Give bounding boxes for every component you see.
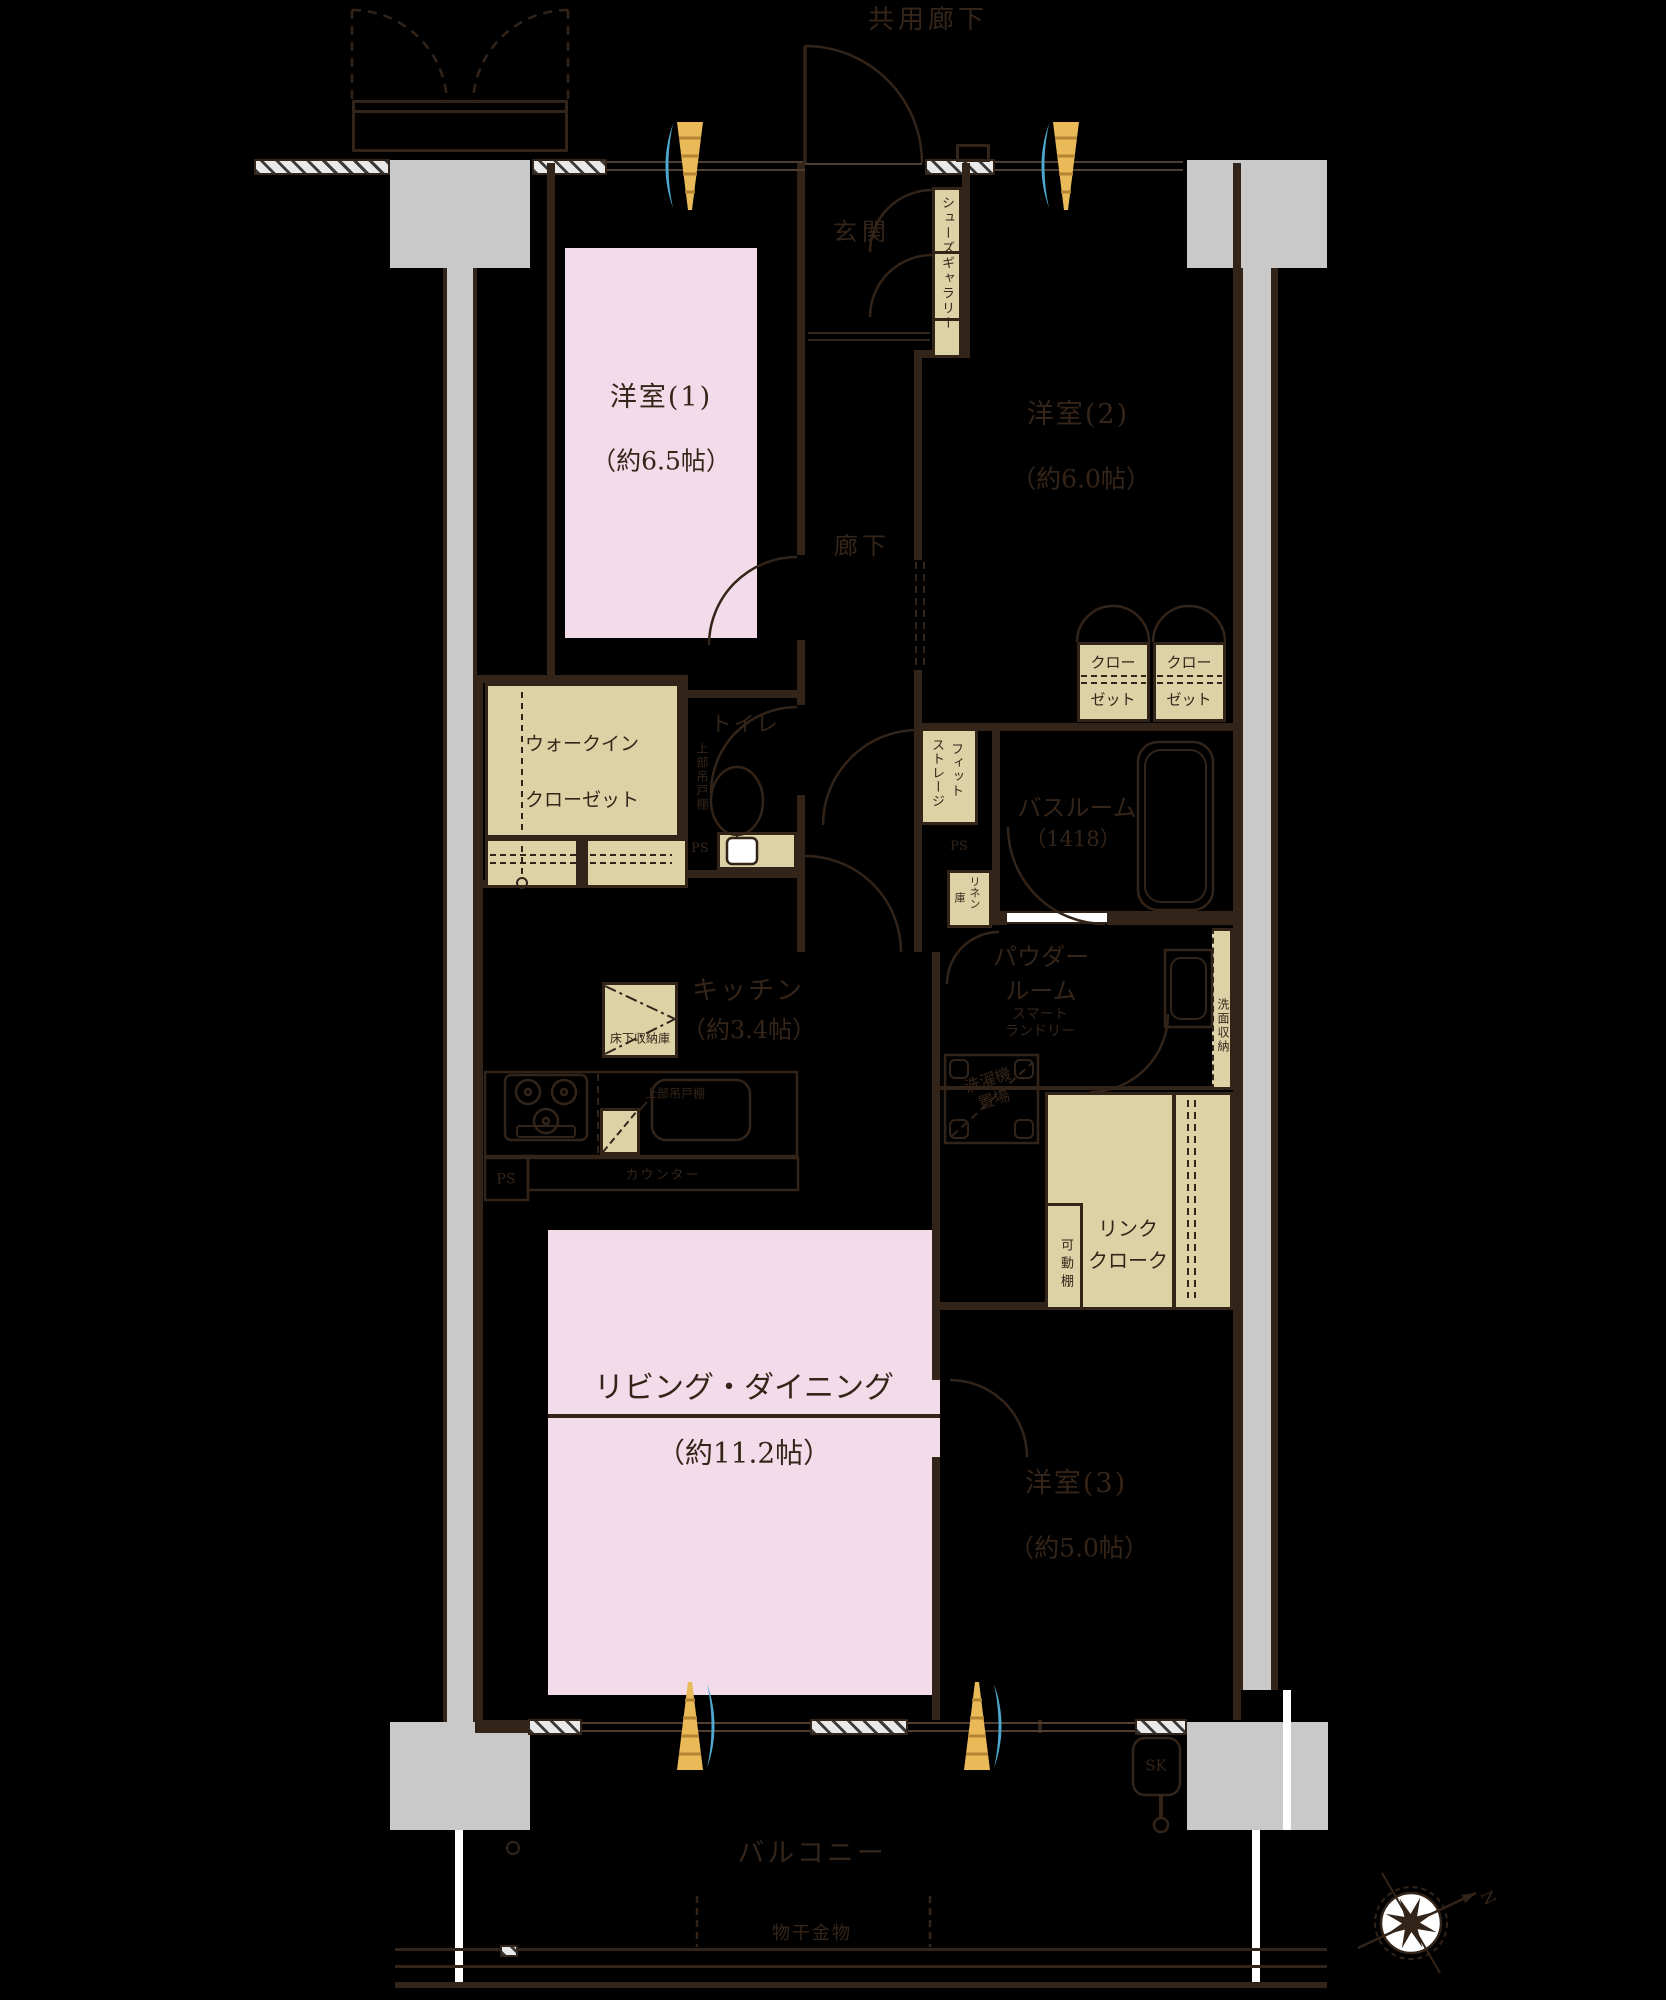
- closet-a-line1: クロー: [1090, 654, 1135, 673]
- link-cloak-line1: リンク: [1098, 1217, 1158, 1242]
- toilet-upper-cabinet-label: 上部吊戸棚: [694, 742, 711, 812]
- wic-line1: ウォークイン: [525, 733, 639, 757]
- link-cloak-line2: クローク: [1088, 1249, 1168, 1274]
- powder-line1: パウダー: [993, 942, 1089, 972]
- room1-label: 洋室(1): [610, 381, 712, 415]
- toilet-label: トイレ: [711, 711, 780, 737]
- kitchen-label: キッチン: [692, 975, 804, 1008]
- room2-size: （約6.0帖）: [1011, 463, 1151, 494]
- underfloor-label: 床下収納庫: [610, 1032, 670, 1047]
- balcony-label: バルコニー: [737, 1837, 886, 1871]
- room3-label: 洋室(3): [1025, 1467, 1127, 1501]
- bathroom-label: バスルーム: [1017, 793, 1136, 823]
- linen-col2: 庫: [951, 892, 967, 903]
- movable-shelf-label: 可動棚: [1056, 1238, 1075, 1292]
- powder-line2: ルーム: [1005, 976, 1076, 1006]
- room3-size: （約5.0帖）: [1009, 1532, 1149, 1563]
- living-label: リビング・ダイニング: [594, 1369, 894, 1407]
- closet-b-line2: ゼット: [1166, 691, 1211, 710]
- floor-plan: 共用廊下 玄関 シューズギャラリー 洋室(1) （約6.5帖） 洋室(2) （約…: [0, 0, 1666, 2000]
- room1-size: （約6.5帖）: [591, 445, 731, 476]
- smart-laundry-line1: スマート: [1012, 1006, 1068, 1024]
- vanity-storage-label: 洗面収納: [1215, 998, 1232, 1054]
- wic-line2: クローゼット: [525, 789, 639, 813]
- smart-laundry-line2: ランドリー: [1005, 1023, 1075, 1041]
- closet-a-line2: ゼット: [1090, 691, 1135, 710]
- common-corridor-label: 共用廊下: [868, 4, 988, 37]
- living-size: （約11.2帖）: [657, 1436, 831, 1471]
- ps-label: PS: [950, 839, 968, 855]
- corridor-label: 廊下: [834, 531, 890, 561]
- closet-b-line1: クロー: [1166, 654, 1211, 673]
- plan-linework: [0, 0, 1666, 2000]
- ps-label: PS: [691, 841, 709, 857]
- ps-label: PS: [496, 1171, 515, 1189]
- fit-storage-col2: ストレージ: [927, 738, 946, 808]
- sk-label: SK: [1145, 1757, 1166, 1776]
- kitchen-upper-cabinet-label: 上部吊戸棚: [645, 1087, 705, 1102]
- entrance-label: 玄関: [833, 217, 891, 247]
- kitchen-size: （約3.4帖）: [682, 1015, 816, 1045]
- counter-label: カウンター: [625, 1168, 700, 1184]
- drying-fixture-label: 物干金物: [772, 1923, 852, 1946]
- room2-label: 洋室(2): [1027, 398, 1129, 432]
- compass-icon: [1358, 1873, 1476, 1973]
- bathroom-size: （1418）: [1025, 826, 1120, 852]
- shoe-gallery-label: シューズギャラリー: [937, 196, 956, 331]
- fit-storage-col1: フィット: [946, 742, 965, 798]
- linen-col1: リネン: [966, 876, 982, 909]
